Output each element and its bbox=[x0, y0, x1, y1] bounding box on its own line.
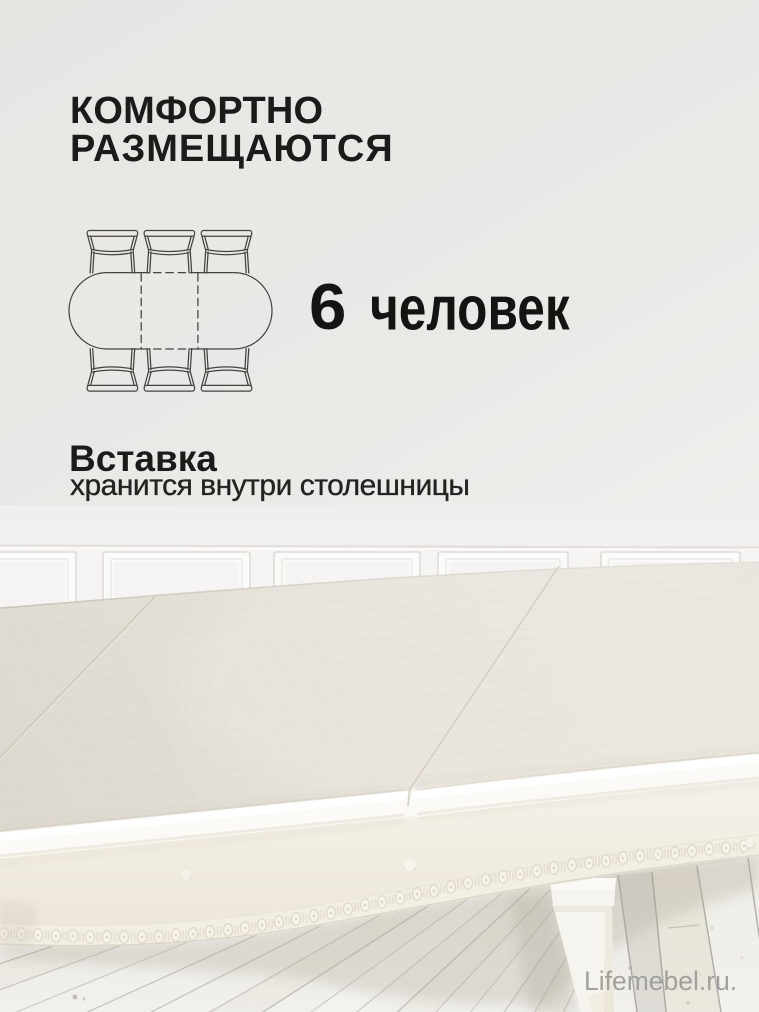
svg-text:Lifemebel.ru.: Lifemebel.ru. bbox=[584, 966, 737, 996]
